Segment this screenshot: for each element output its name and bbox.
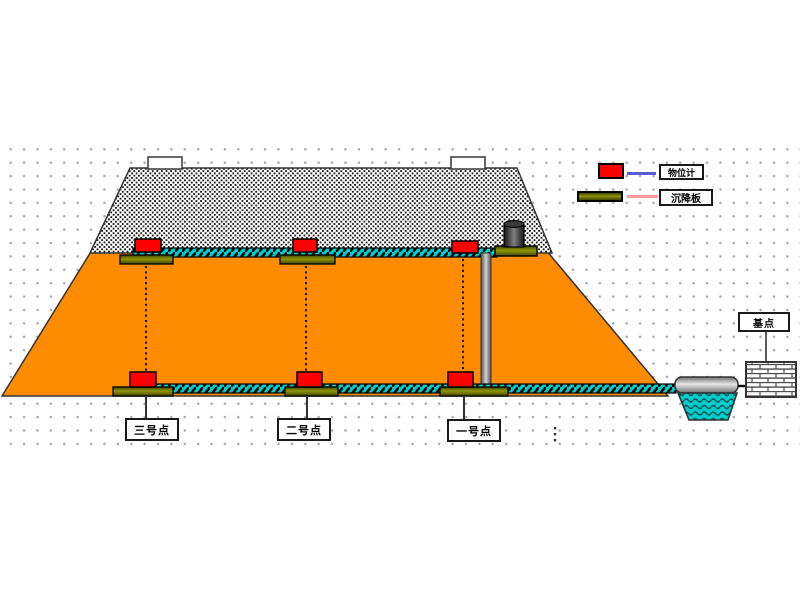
collector-cylinder xyxy=(675,377,738,393)
point3-label-box[interactable]: 三号点 xyxy=(125,418,179,441)
legend-plate-swatch xyxy=(577,191,623,202)
legend-gauge-swatch xyxy=(598,163,624,179)
legend-gauge-label-box: 物位计 xyxy=(659,164,704,180)
lower-plate-point3 xyxy=(113,387,173,396)
upper-sensor-point3[interactable] xyxy=(135,239,161,252)
lower-sensor-point1[interactable] xyxy=(448,372,473,387)
legend-plate-label: 沉降板 xyxy=(671,190,701,205)
lower-plate-point2 xyxy=(285,387,338,396)
upper-plate-point2 xyxy=(280,255,335,264)
legend-plate-label-box: 沉降板 xyxy=(659,189,713,206)
lower-sensor-point2[interactable] xyxy=(297,372,322,387)
point2-label-box[interactable]: 二号点 xyxy=(277,418,331,441)
hmi-canvas: 三号点 二号点 一号点 基点 物位计 沉降板 xyxy=(0,0,800,600)
riser-cap-cylinder xyxy=(504,221,524,247)
point1-label-box[interactable]: 一号点 xyxy=(447,419,501,442)
lower-sensor-point3[interactable] xyxy=(130,372,156,387)
upper-sensor-point2[interactable] xyxy=(293,239,317,252)
crest-monument-left xyxy=(148,157,182,169)
legend-gauge-line xyxy=(627,172,656,175)
datum-label-box[interactable]: 基点 xyxy=(738,312,790,332)
upper-plate-point3 xyxy=(120,255,173,264)
legend-plate-line xyxy=(627,195,658,198)
crest-monument-right xyxy=(451,157,485,169)
upper-sensor-point1[interactable] xyxy=(452,241,478,253)
point1-label: 一号点 xyxy=(456,423,492,439)
lower-plate-point1 xyxy=(440,387,508,396)
riser-pipe xyxy=(481,253,491,387)
point3-label: 三号点 xyxy=(134,422,170,438)
water-pool xyxy=(678,393,737,420)
datum-label: 基点 xyxy=(753,315,775,330)
point2-label: 二号点 xyxy=(286,422,322,438)
lower-settlement-tube xyxy=(145,384,676,393)
datum-brick-house xyxy=(746,362,796,397)
settlement-monitoring-diagram xyxy=(0,0,800,600)
embankment-fill-body xyxy=(2,250,668,396)
legend-gauge-label: 物位计 xyxy=(668,166,695,179)
